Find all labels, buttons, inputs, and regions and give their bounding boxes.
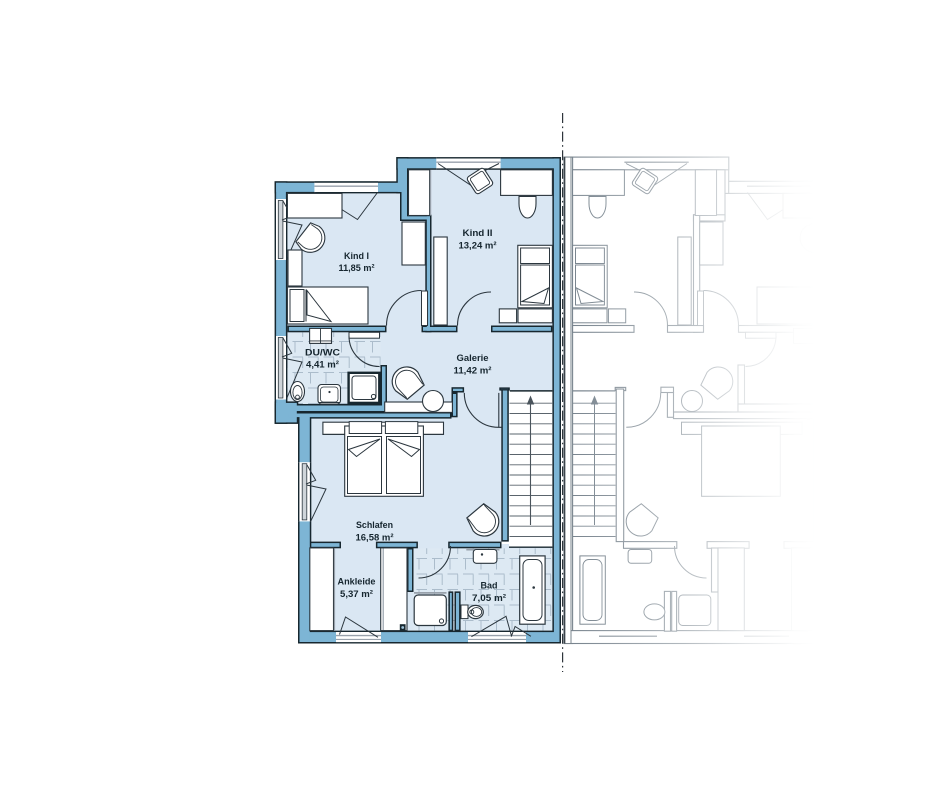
svg-text:Galerie: Galerie [457,352,489,363]
svg-text:Schlafen: Schlafen [356,519,393,530]
svg-text:Kind I: Kind I [344,250,369,261]
svg-text:Kind II: Kind II [463,227,493,238]
svg-text:5,37 m²: 5,37 m² [340,588,373,599]
svg-text:4,41 m²: 4,41 m² [306,359,339,370]
svg-text:Bad: Bad [481,580,498,591]
svg-text:DU/WC: DU/WC [305,347,340,358]
svg-text:16,58 m²: 16,58 m² [356,532,394,543]
svg-text:11,85 m²: 11,85 m² [339,262,375,273]
svg-text:13,24 m²: 13,24 m² [459,240,497,251]
svg-text:Ankleide: Ankleide [338,576,376,587]
svg-text:7,05 m²: 7,05 m² [472,592,506,603]
svg-text:11,42 m²: 11,42 m² [454,365,492,376]
